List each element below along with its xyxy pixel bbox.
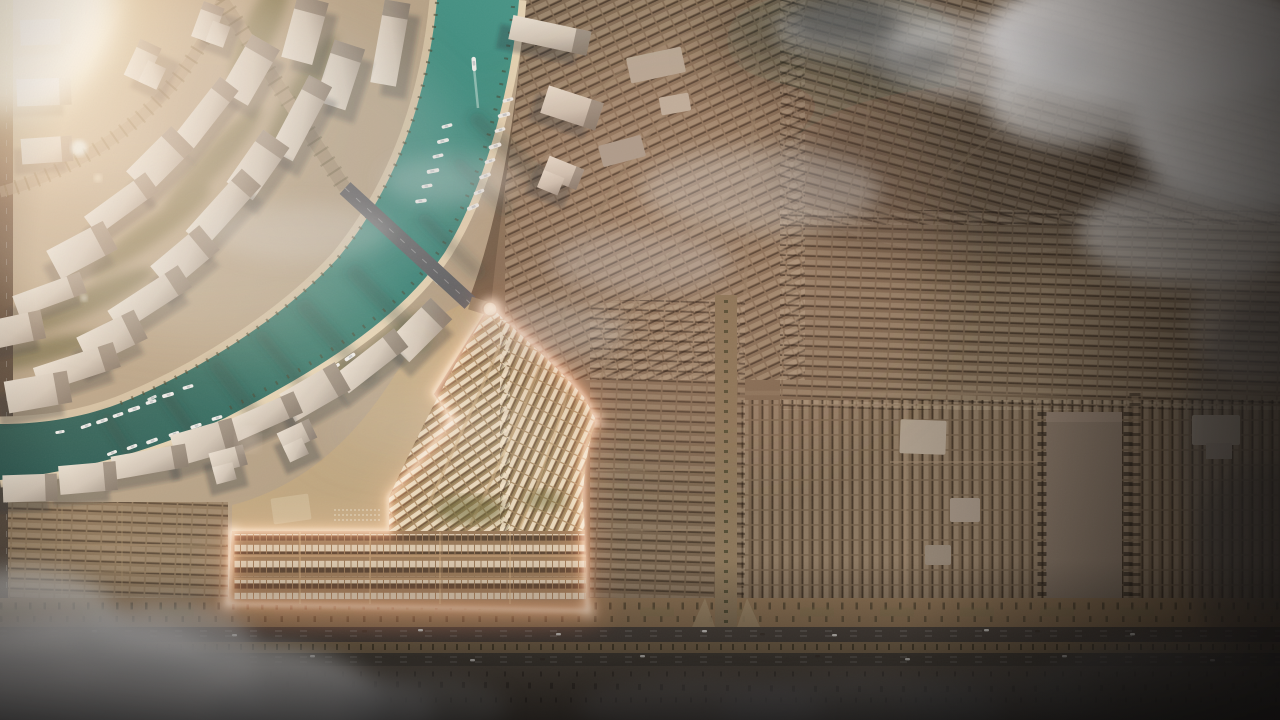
right-darkening [0, 0, 1280, 720]
aerial-render-canvas [0, 0, 1280, 720]
aerial-render [0, 0, 1280, 720]
